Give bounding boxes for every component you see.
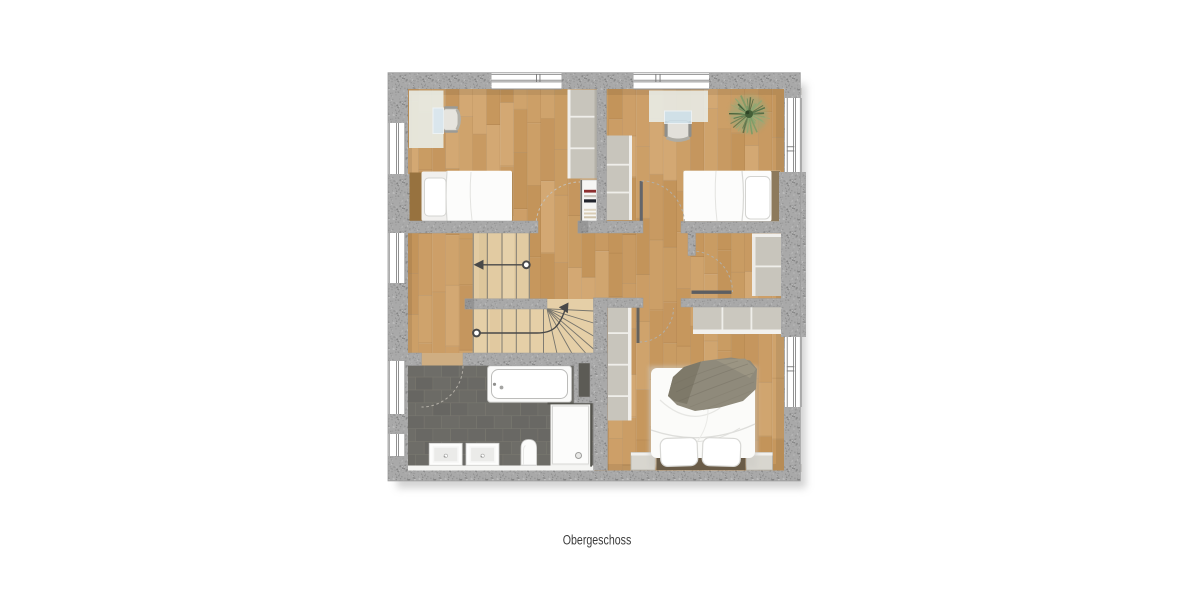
svg-text:Obergeschoss: Obergeschoss (563, 532, 632, 548)
